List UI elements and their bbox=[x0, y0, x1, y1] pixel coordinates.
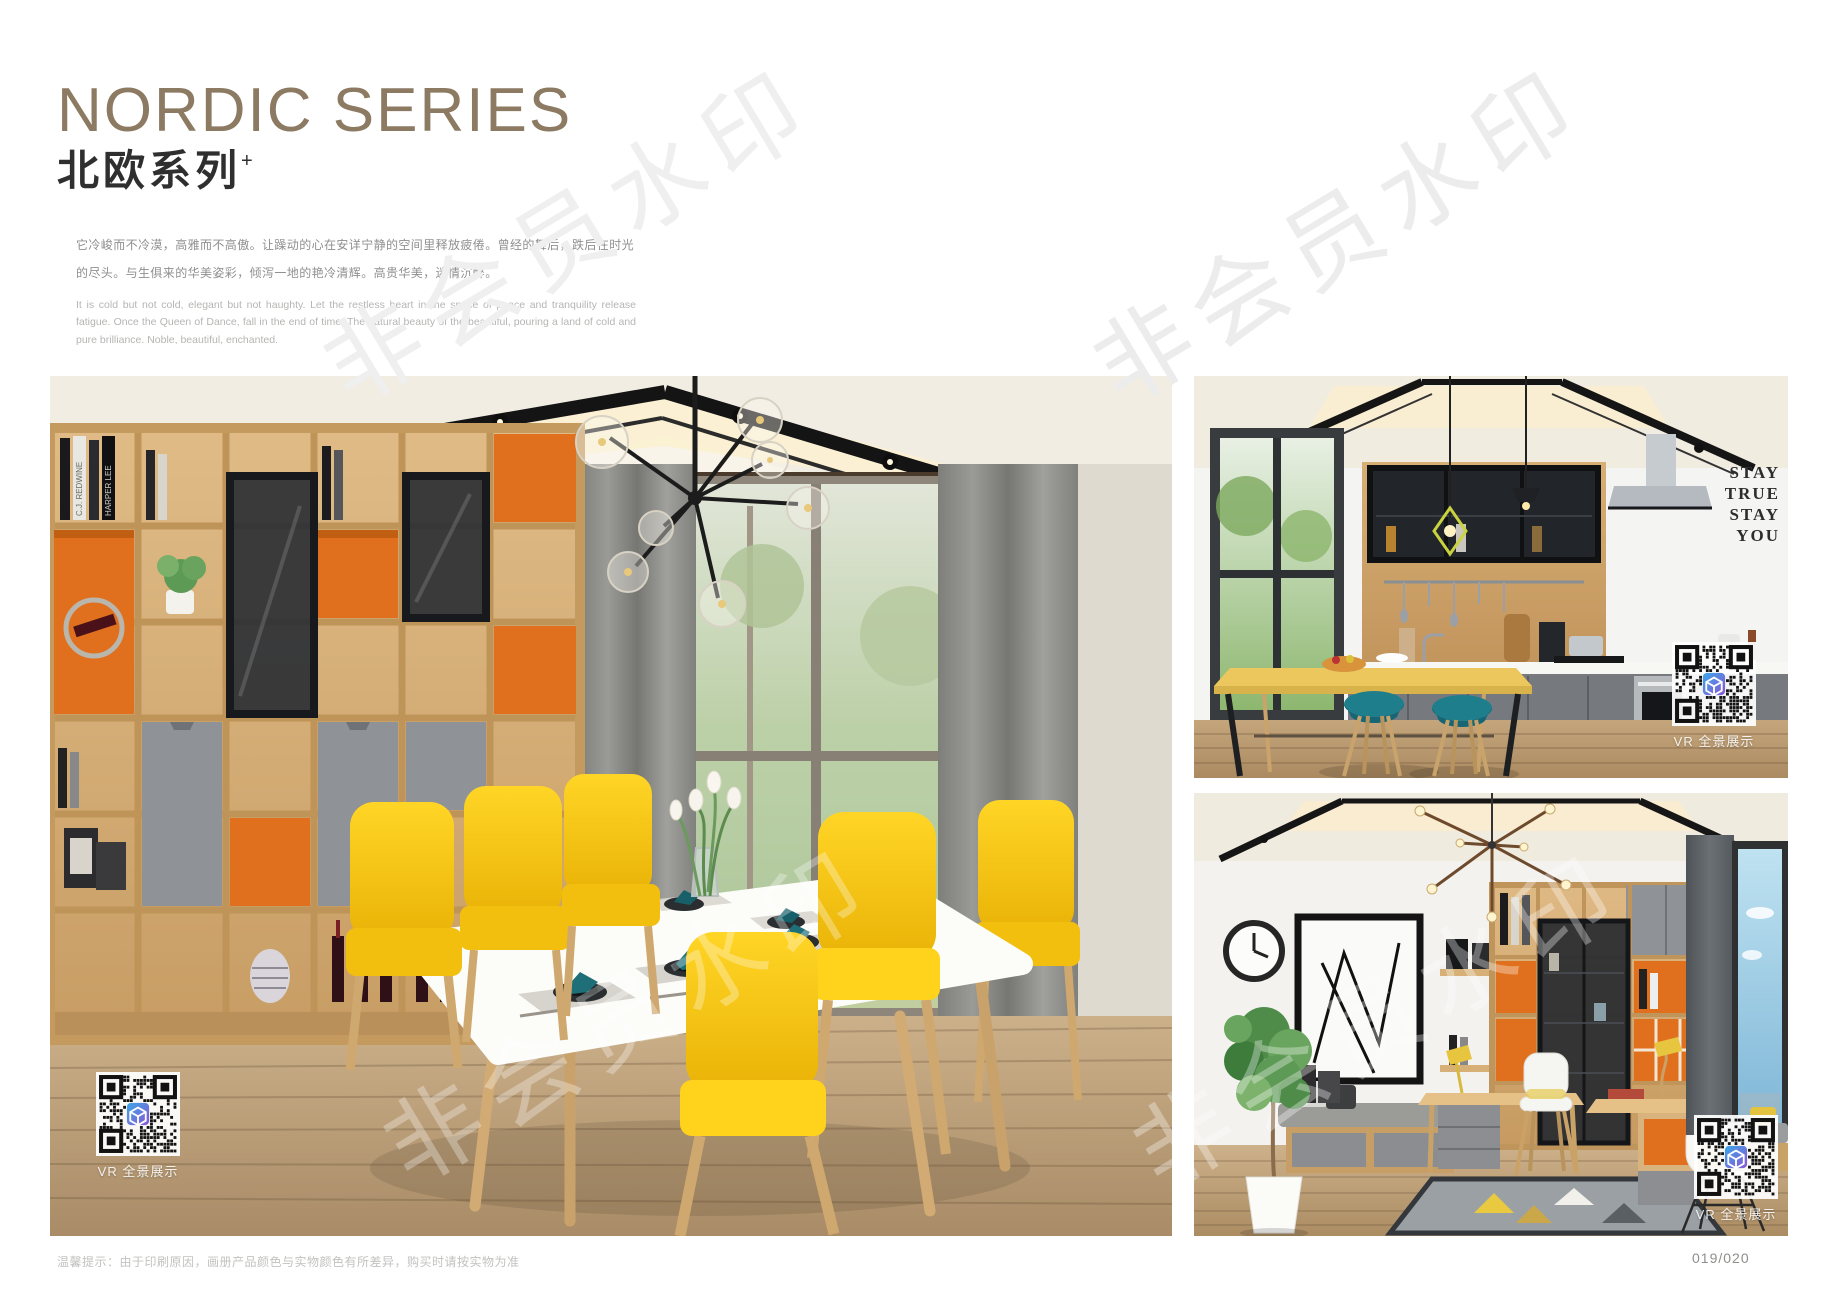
subtitle-text: 北欧系列 bbox=[57, 147, 241, 194]
cooktop bbox=[1554, 656, 1624, 663]
book-spine: HARPER LEE bbox=[104, 465, 113, 516]
kitchen-photo: STAY TRUE STAY YOU VR 全景展示 bbox=[1194, 376, 1788, 778]
dining-room-photo: C.J. REDWINE HARPER LEE bbox=[50, 376, 1172, 1236]
study-window-view bbox=[1738, 849, 1782, 1125]
vr-label: VR 全景展示 bbox=[1666, 731, 1762, 750]
catalog-page: NORDIC SERIES 北欧系列+ 它冷峻而不冷漠，高雅而不高傲。让躁动的心… bbox=[0, 0, 1836, 1307]
wall-decor-text: STAY TRUE STAY YOU bbox=[1725, 462, 1780, 546]
vr-qr-code bbox=[1672, 642, 1756, 726]
vr-qr-badge: VR 全景展示 bbox=[1666, 642, 1762, 750]
page-title: NORDIC SERIES bbox=[57, 80, 572, 142]
subtitle-plus: + bbox=[241, 150, 253, 172]
page-number: 019/020 bbox=[1692, 1250, 1750, 1266]
striped-jar bbox=[250, 949, 290, 1003]
watermark: 非会员水印 bbox=[1063, 28, 1606, 430]
book-spine: C.J. REDWINE bbox=[75, 462, 84, 516]
upper-glass-cabinet bbox=[1370, 468, 1598, 560]
study-room-photo: VR 全景展示 bbox=[1194, 793, 1788, 1236]
plant-pot bbox=[166, 590, 194, 614]
cutting-board bbox=[1504, 614, 1530, 662]
vr-qr-code bbox=[96, 1072, 180, 1156]
vr-qr-badge: VR 全景展示 bbox=[1688, 1115, 1784, 1223]
pot bbox=[1569, 636, 1603, 656]
footer-note: 温馨提示：由于印刷原因，画册产品颜色与实物颜色有所差异，购买时请按实物为准 bbox=[57, 1253, 520, 1270]
vr-qr-code bbox=[1694, 1115, 1778, 1199]
page-subtitle: 北欧系列+ bbox=[57, 150, 253, 192]
study-curtain bbox=[1686, 835, 1734, 1135]
vr-label: VR 全景展示 bbox=[1688, 1204, 1784, 1223]
description-english: It is cold but not cold, elegant but not… bbox=[76, 297, 636, 349]
range-hood bbox=[1646, 434, 1676, 486]
dining-room-scene: C.J. REDWINE HARPER LEE bbox=[50, 376, 1172, 1236]
vr-qr-badge: VR 全景展示 bbox=[90, 1072, 186, 1180]
description-chinese: 它冷峻而不冷漠，高雅而不高傲。让躁动的心在安详宁静的空间里释放疲倦。曾经的舞后，… bbox=[76, 232, 636, 287]
vr-label: VR 全景展示 bbox=[90, 1161, 186, 1180]
